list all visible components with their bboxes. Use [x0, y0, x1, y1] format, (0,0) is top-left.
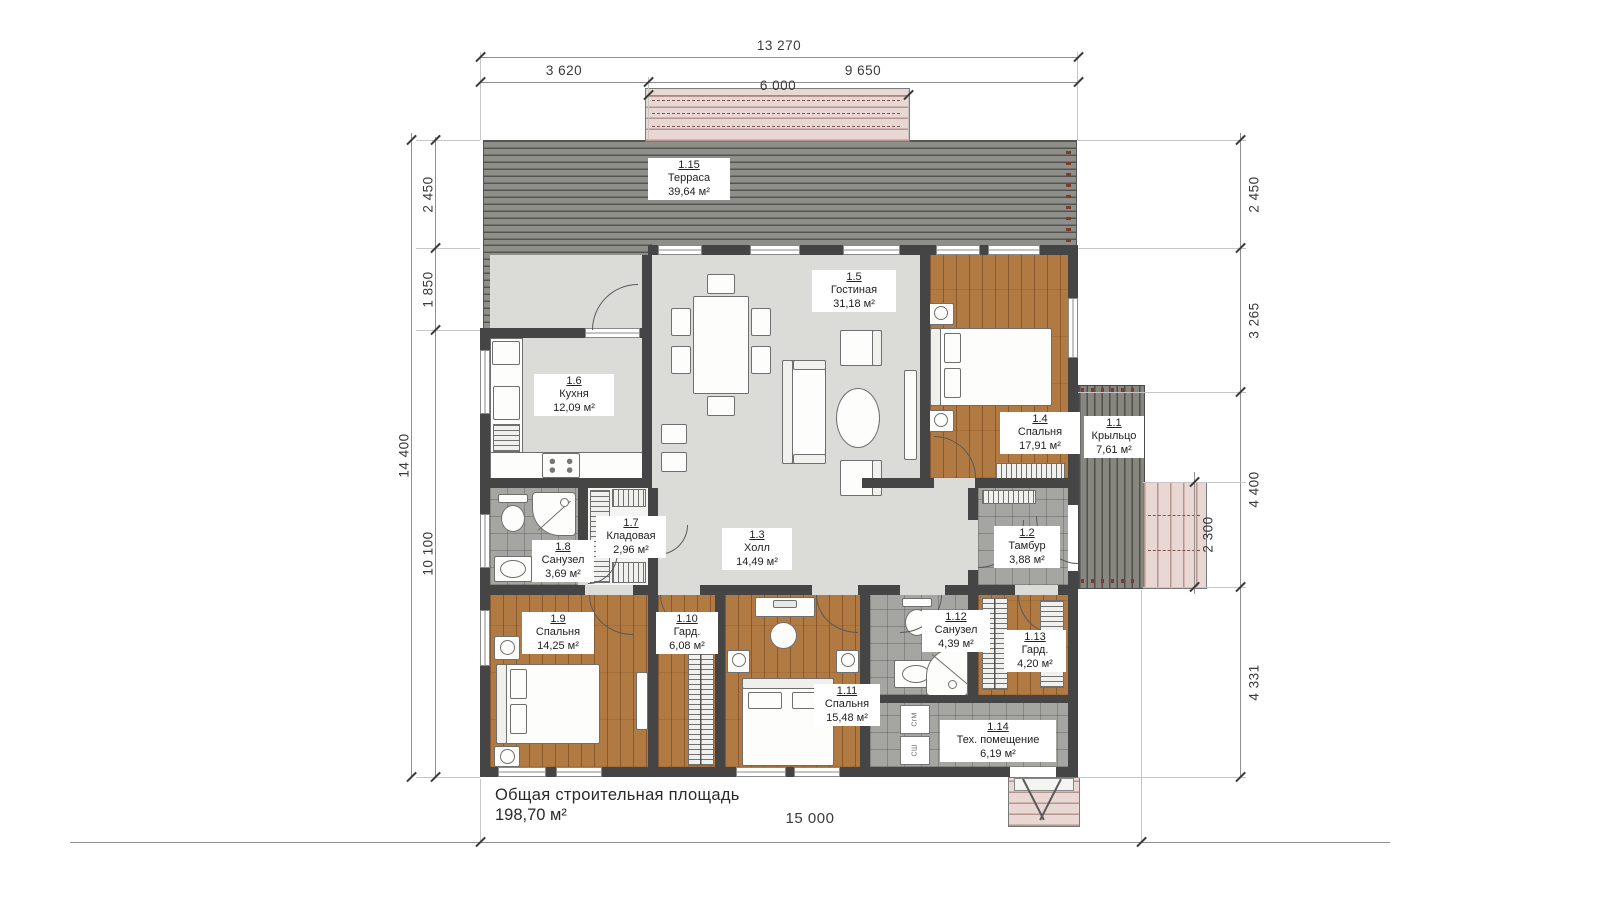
dim-line	[1194, 472, 1195, 594]
dishwasher	[493, 424, 520, 452]
wall	[862, 478, 934, 488]
room-area: 39,64 м²	[650, 186, 728, 199]
stool	[661, 424, 687, 444]
ext-line	[416, 140, 480, 141]
dryer-label: СШ	[911, 744, 918, 756]
dim-terrace-depth: 2 450	[421, 165, 436, 225]
room-name: Тех. помещение	[942, 734, 1054, 747]
room-name: Спальня	[1002, 426, 1078, 439]
dim-pergola: 6 000	[648, 78, 908, 93]
room-name: Санузел	[924, 624, 988, 637]
room-number: 1.11	[816, 685, 878, 698]
room-number: 1.7	[598, 517, 664, 530]
room-name: Гард.	[1006, 644, 1064, 657]
dim-kitchen-offset: 1 850	[421, 260, 436, 320]
dim-total-bottom: 15 000	[750, 810, 870, 827]
room-number: 1.1	[1086, 417, 1142, 430]
terrace-deck	[483, 140, 1077, 248]
room-number: 1.15	[650, 159, 728, 172]
room-name: Терраса	[650, 172, 728, 185]
pillow	[748, 692, 782, 709]
stool	[661, 452, 687, 472]
ext-line	[416, 330, 480, 331]
wall	[700, 585, 812, 595]
room-label-kitchen: 1.6 Кухня 12,09 м²	[534, 374, 614, 416]
room-label-bedroom-19: 1.9 Спальня 14,25 м²	[522, 612, 594, 654]
tv-stand	[904, 370, 917, 460]
ext-line	[1078, 777, 1246, 778]
window	[556, 767, 602, 777]
pillow	[944, 368, 961, 398]
room-area: 6,19 м²	[942, 748, 1054, 761]
dim-porch-steps: 2 300	[1201, 505, 1216, 565]
room-number: 1.13	[1006, 631, 1064, 644]
room-name: Спальня	[524, 626, 592, 639]
washer-label: СгМ	[912, 712, 919, 726]
pergola-dash	[652, 100, 900, 101]
room-number: 1.9	[524, 613, 592, 626]
steps-dash	[1148, 515, 1200, 516]
room-name: Гостиная	[814, 284, 894, 297]
room-area: 4,39 м²	[924, 638, 988, 651]
window	[480, 514, 490, 568]
room-name: Крыльцо	[1086, 430, 1142, 443]
room-area: 2,96 м²	[598, 544, 664, 557]
window	[794, 767, 840, 777]
chair	[671, 308, 691, 336]
dim-right-upper: 3 265	[1247, 291, 1262, 351]
room-number: 1.6	[536, 375, 612, 388]
room-number: 1.14	[942, 721, 1054, 734]
wall	[920, 255, 930, 488]
room-label-bath-112: 1.12 Санузел 4,39 м²	[922, 610, 990, 652]
shelving	[612, 562, 646, 583]
wall	[480, 478, 652, 488]
terrace-door	[658, 245, 702, 255]
pergola	[645, 88, 910, 142]
ext-line	[1141, 590, 1142, 843]
sink-basin	[500, 560, 526, 578]
room-label-living: 1.5 Гостиная 31,18 м²	[812, 270, 896, 312]
room-area: 4,20 м²	[1006, 658, 1064, 671]
coffee-table	[836, 388, 880, 448]
wall	[860, 595, 870, 767]
window	[1068, 298, 1078, 358]
shower-drain	[948, 680, 957, 689]
room-number: 1.12	[924, 611, 988, 624]
dim-line	[648, 95, 908, 96]
room-area: 3,88 м²	[996, 554, 1058, 567]
pillow	[510, 669, 527, 699]
pillow	[944, 333, 961, 363]
room-number: 1.5	[814, 271, 894, 284]
toilet-bowl	[501, 505, 525, 532]
wall	[858, 585, 900, 595]
floor-plan: СгМ СШ 1.15	[0, 0, 1599, 900]
dim-right-top: 2 450	[1247, 165, 1262, 225]
dim-right-bottom: 4 331	[1247, 653, 1262, 713]
room-label-tech: 1.14 Тех. помещение 6,19 м²	[940, 720, 1056, 762]
terrace-door	[843, 245, 900, 255]
dim-total-width: 13 270	[480, 38, 1078, 53]
ext-line	[480, 779, 481, 843]
bench	[982, 490, 1036, 504]
dim-line	[1240, 133, 1241, 778]
dim-line	[435, 137, 436, 778]
terrace-door	[750, 245, 800, 255]
wall	[968, 488, 978, 520]
dim-total-height: 14 400	[397, 426, 412, 486]
room-name: Кладовая	[598, 530, 664, 543]
room-number: 1.2	[996, 527, 1058, 540]
wall	[860, 695, 1078, 703]
room-area: 14,25 м²	[524, 640, 592, 653]
room-label-wardrobe-110: 1.10 Гард. 6,08 м²	[656, 612, 718, 654]
room-number: 1.8	[534, 541, 592, 554]
lamp	[934, 306, 948, 320]
room-name: Спальня	[816, 698, 878, 711]
shower-drain	[560, 498, 569, 507]
room-area: 6,08 м²	[658, 640, 716, 653]
wall	[1058, 585, 1078, 595]
room-area: 17,91 м²	[1002, 440, 1078, 453]
room-area: 3,69 м²	[534, 568, 592, 581]
wall	[975, 478, 1078, 488]
total-area-title: Общая строительная площадь	[495, 786, 740, 805]
dim-right-section: 9 650	[648, 63, 1078, 78]
pergola-dash	[652, 113, 900, 114]
window	[736, 767, 786, 777]
pillow	[510, 704, 527, 734]
armchair-back	[872, 330, 882, 366]
wall	[945, 585, 1015, 595]
ext-line	[1078, 392, 1246, 393]
room-area: 12,09 м²	[536, 402, 612, 415]
room-number: 1.10	[658, 613, 716, 626]
dim-right-mid: 4 400	[1247, 460, 1262, 520]
ext-line	[1078, 248, 1246, 249]
lamp	[500, 749, 515, 764]
window	[936, 245, 980, 255]
room-label-hall: 1.3 Холл 14,49 м²	[722, 528, 792, 570]
window	[498, 767, 546, 777]
room-name: Гард.	[658, 626, 716, 639]
room-label-bedroom-111: 1.11 Спальня 15,48 м²	[814, 684, 880, 726]
window	[480, 350, 490, 414]
wall	[1056, 767, 1078, 777]
room-label-tambour: 1.2 Тамбур 3,88 м²	[994, 526, 1060, 568]
dim-body-height: 10 100	[421, 524, 436, 584]
lamp	[732, 653, 746, 667]
room-label-porch: 1.1 Крыльцо 7,61 м²	[1084, 416, 1144, 458]
dim-line	[480, 57, 1078, 58]
wall	[480, 585, 585, 595]
room-area: 15,48 м²	[816, 712, 878, 725]
tv-stand	[636, 672, 648, 730]
ext-line	[908, 90, 909, 140]
lamp	[934, 413, 948, 427]
dim-line	[70, 842, 1390, 843]
dim-left-section: 3 620	[480, 63, 648, 78]
stove	[542, 453, 580, 478]
steps-dash	[1148, 550, 1200, 551]
sofa-arm	[793, 454, 826, 464]
total-area-value: 198,70 м²	[495, 806, 567, 825]
bed-headboard	[930, 328, 941, 406]
room-number: 1.3	[724, 529, 790, 542]
shelving	[612, 489, 646, 507]
washer: СгМ	[900, 705, 930, 734]
chair	[751, 346, 771, 374]
porch-fasteners	[1081, 579, 1140, 583]
chair	[707, 396, 735, 416]
desk-chair	[770, 622, 797, 649]
monitor	[773, 600, 797, 608]
fridge	[492, 341, 520, 365]
dryer: СШ	[900, 736, 930, 765]
room-area: 14,49 м²	[724, 556, 790, 569]
room-name: Кухня	[536, 388, 612, 401]
window	[988, 245, 1040, 255]
terrace-fasteners	[1066, 147, 1071, 242]
clothes-rail	[688, 648, 714, 766]
room-label-bath-18: 1.8 Санузел 3,69 м²	[532, 540, 594, 582]
window	[480, 610, 490, 666]
sofa-arm	[793, 360, 826, 370]
porch-steps	[1143, 482, 1207, 589]
chair	[751, 308, 771, 336]
room-label-wardrobe-113: 1.13 Гард. 4,20 м²	[1004, 630, 1066, 672]
room-label-bedroom-14: 1.4 Спальня 17,91 м²	[1000, 412, 1080, 454]
room-name: Холл	[724, 542, 790, 555]
lamp	[500, 640, 515, 655]
bed-headboard	[496, 664, 507, 744]
pergola-dash	[652, 126, 900, 127]
ext-line	[1078, 140, 1246, 141]
toilet-tank	[498, 494, 528, 503]
wall	[642, 255, 652, 488]
kitchen-sink	[493, 386, 520, 420]
dining-table	[693, 296, 749, 394]
wall	[968, 570, 978, 585]
room-number: 1.4	[1002, 413, 1078, 426]
wall	[648, 555, 658, 585]
sofa-back	[782, 360, 793, 464]
chair	[671, 346, 691, 374]
lamp	[841, 653, 855, 667]
ext-line	[416, 248, 480, 249]
room-label-storage: 1.7 Кладовая 2,96 м²	[596, 516, 666, 558]
room-label-terrace: 1.15 Терраса 39,64 м²	[648, 158, 730, 200]
ext-line	[416, 777, 480, 778]
room-name: Санузел	[534, 554, 592, 567]
room-area: 7,61 м²	[1086, 444, 1142, 457]
room-area: 31,18 м²	[814, 298, 894, 311]
chair	[707, 274, 735, 294]
wall	[633, 585, 658, 595]
room-name: Тамбур	[996, 540, 1058, 553]
